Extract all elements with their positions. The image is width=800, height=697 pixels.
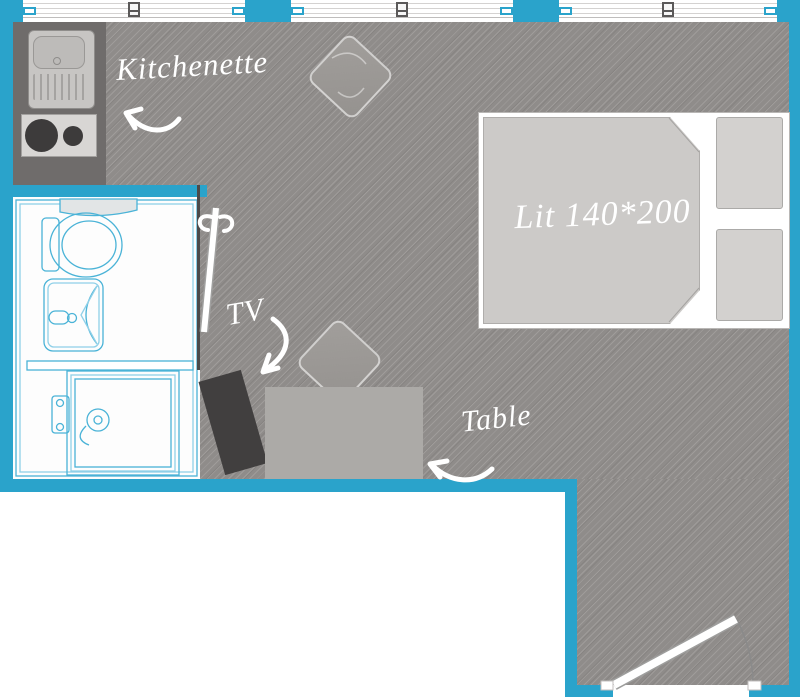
window-handle-line [398,10,406,12]
wall-left [0,0,13,492]
wall-entry-bottom-a [565,685,613,697]
table [265,387,423,479]
floor-plan: Kitchenette Lit 140*200 TV Table [0,0,800,697]
window-handle-icon [396,2,408,17]
bed-label: Lit 140*200 [494,192,710,237]
window-casement-icon [232,7,245,15]
tv-label: TV [223,291,267,333]
burner-large-icon [25,119,58,152]
window-handle-icon [128,2,140,17]
window-handle-line [664,10,672,12]
bathroom [13,197,200,479]
pillow [716,229,783,321]
window-casement-icon [764,7,777,15]
entry-floor [577,479,789,685]
window-handle-line [130,10,138,12]
bathroom-door-jamb [197,185,200,370]
window-casement-icon [500,7,513,15]
wall-window-pier-2 [513,0,559,22]
wall-entry-left [565,479,577,697]
window-handle-icon [662,2,674,17]
burner-small-icon [63,126,83,146]
sink-drain-icon [53,57,61,65]
wall-bathroom-top [0,185,207,197]
wall-window-pier-1 [245,0,291,22]
window-casement-icon [559,7,572,15]
window-casement-icon [23,7,36,15]
wall-right [789,0,800,697]
wall-bottom-left [0,479,577,492]
drainboard-icon [33,74,89,100]
pillow [716,117,783,209]
wall-entry-bottom-b [749,685,800,697]
window-casement-icon [291,7,304,15]
